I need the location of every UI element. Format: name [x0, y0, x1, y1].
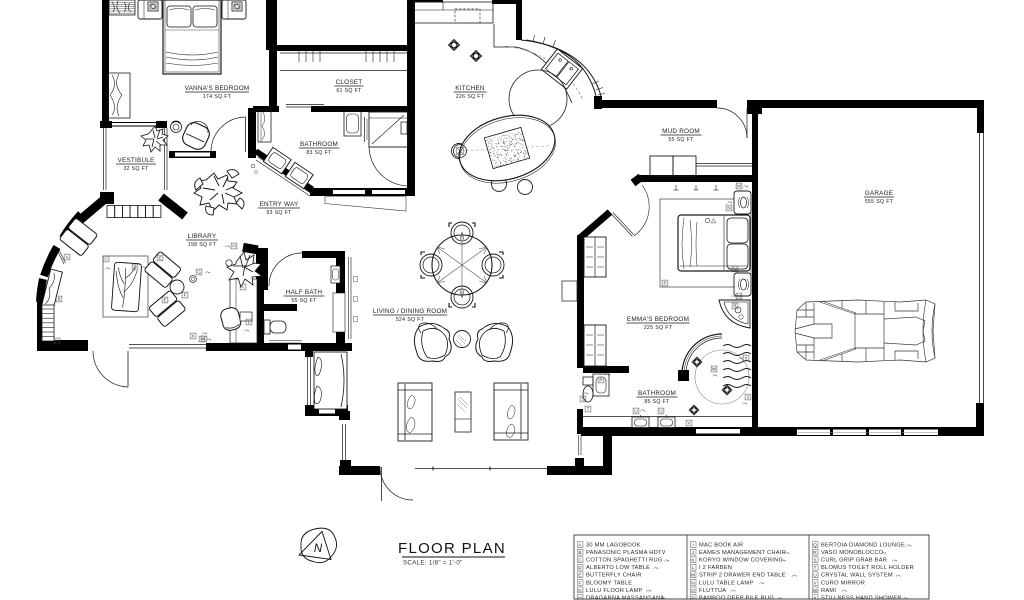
- svg-text:BUTTERFLY CHAIR: BUTTERFLY CHAIR: [586, 573, 642, 579]
- svg-text:W: W: [712, 367, 717, 372]
- svg-text:D: D: [578, 565, 582, 571]
- svg-text:STRIP 2 DRAWER END TABLE: STRIP 2 DRAWER END TABLE: [699, 573, 786, 579]
- svg-text:ALBERTO LOW TABLE: ALBERTO LOW TABLE: [586, 565, 650, 571]
- svg-text:G: G: [197, 270, 201, 275]
- svg-text:R: R: [813, 550, 817, 556]
- svg-text:KORYO WINDOW COVERING: KORYO WINDOW COVERING: [699, 558, 783, 564]
- svg-text:N: N: [733, 267, 736, 272]
- svg-text:LIVING / DINING ROOM: LIVING / DINING ROOM: [373, 308, 447, 315]
- svg-text:85 SQ FT: 85 SQ FT: [644, 399, 670, 405]
- svg-text:30 MM LAGOBOOK: 30 MM LAGOBOOK: [586, 543, 641, 549]
- svg-text:DRAGARNA MASSANGANA: DRAGARNA MASSANGANA: [586, 595, 664, 600]
- svg-text:N: N: [314, 543, 323, 555]
- svg-text:BLOOMY TABLE: BLOOMY TABLE: [586, 580, 632, 586]
- svg-text:H: H: [578, 595, 582, 600]
- svg-text:HALF BATH: HALF BATH: [286, 289, 323, 296]
- svg-text:GARAGE: GARAGE: [865, 190, 894, 197]
- svg-text:524 SQ FT: 524 SQ FT: [396, 317, 425, 323]
- svg-text:198 SQ FT: 198 SQ FT: [188, 242, 217, 248]
- svg-text:FLOOR PLAN: FLOOR PLAN: [398, 540, 506, 557]
- svg-text:174 SQ FT: 174 SQ FT: [203, 94, 232, 100]
- svg-text:BATHROOM: BATHROOM: [300, 141, 338, 148]
- svg-text:BERTOIA DIAMOND LOUNGE: BERTOIA DIAMOND LOUNGE: [821, 543, 905, 549]
- svg-text:N: N: [691, 580, 695, 586]
- svg-text:EAMES MANAGEMENT CHAIR: EAMES MANAGEMENT CHAIR: [699, 550, 786, 556]
- svg-text:L: L: [692, 565, 695, 571]
- svg-text:U: U: [634, 409, 637, 414]
- svg-text:STILLNESS HAND SHOWER: STILLNESS HAND SHOWER: [821, 595, 902, 600]
- svg-text:ENTRY WAY: ENTRY WAY: [260, 201, 299, 208]
- svg-text:BLOMUS TOILET ROLL HOLDER: BLOMUS TOILET ROLL HOLDER: [821, 565, 914, 571]
- svg-text:T: T: [587, 407, 590, 412]
- svg-text:BAMBOO DEEP PILE RUG: BAMBOO DEEP PILE RUG: [699, 595, 774, 600]
- svg-text:F: F: [579, 580, 582, 586]
- svg-text:C: C: [578, 558, 582, 564]
- svg-text:SCALE: 1/8" = 1'-0": SCALE: 1/8" = 1'-0": [403, 560, 463, 567]
- svg-text:M: M: [737, 184, 741, 189]
- svg-text:83 SQ FT: 83 SQ FT: [306, 150, 332, 156]
- svg-text:I: I: [692, 543, 693, 549]
- svg-text:W: W: [813, 588, 818, 594]
- svg-text:VASO MONOBLOCCO: VASO MONOBLOCCO: [821, 550, 884, 556]
- svg-text:P: P: [691, 595, 694, 600]
- svg-text:93 SQ FT: 93 SQ FT: [266, 210, 292, 216]
- svg-text:Q: Q: [813, 543, 817, 549]
- svg-text:FLUTTUA: FLUTTUA: [699, 588, 726, 594]
- svg-text:KITCHEN: KITCHEN: [455, 85, 485, 92]
- svg-text:225 SQ FT: 225 SQ FT: [644, 325, 673, 331]
- svg-text:COTTON SPAGHETTI RUG: COTTON SPAGHETTI RUG: [586, 558, 663, 564]
- svg-text:55 SQ FT: 55 SQ FT: [291, 298, 317, 304]
- svg-text:E: E: [578, 573, 581, 579]
- svg-text:MUD ROOM: MUD ROOM: [662, 128, 700, 135]
- svg-text:E: E: [163, 298, 166, 303]
- svg-text:VESTIBULE: VESTIBULE: [118, 157, 155, 164]
- svg-text:F: F: [184, 293, 187, 298]
- svg-text:X: X: [744, 356, 747, 361]
- svg-text:55 SQ FT: 55 SQ FT: [668, 137, 694, 143]
- svg-text:RAMI: RAMI: [821, 588, 836, 594]
- svg-text:LIBRARY: LIBRARY: [188, 233, 217, 240]
- svg-text:S: S: [813, 558, 816, 564]
- svg-text:555 SQ FT: 555 SQ FT: [865, 199, 894, 205]
- svg-text:T: T: [814, 565, 817, 571]
- svg-text:E: E: [158, 256, 161, 261]
- svg-text:B: B: [578, 550, 581, 556]
- svg-text:G: G: [578, 588, 582, 594]
- svg-text:VANNA'S BEDROOM: VANNA'S BEDROOM: [185, 85, 250, 92]
- svg-text:S: S: [746, 395, 749, 400]
- svg-text:LULU FLOOR LAMP: LULU FLOOR LAMP: [586, 588, 643, 594]
- svg-text:B: B: [57, 297, 60, 302]
- svg-text:O: O: [691, 588, 695, 594]
- svg-text:P: P: [663, 281, 666, 286]
- svg-text:226 SQ FT: 226 SQ FT: [456, 94, 485, 100]
- svg-text:PANASONIC PLASMA HDTV: PANASONIC PLASMA HDTV: [586, 550, 666, 556]
- svg-text:61 SQ FT: 61 SQ FT: [336, 88, 362, 94]
- svg-text:S: S: [581, 397, 584, 402]
- svg-text:I 2 FARBEN: I 2 FARBEN: [699, 565, 732, 571]
- svg-text:CRYSTAL WALL SYSTEM: CRYSTAL WALL SYSTEM: [821, 573, 893, 579]
- svg-text:CLOSET: CLOSET: [336, 79, 363, 86]
- svg-text:EMMA'S BEDROOM: EMMA'S BEDROOM: [627, 316, 689, 323]
- svg-text:CURL GRIP GRAB BAR: CURL GRIP GRAB BAR: [821, 558, 887, 564]
- svg-text:U: U: [813, 573, 817, 579]
- svg-text:U: U: [659, 409, 662, 414]
- svg-text:N: N: [727, 206, 730, 211]
- svg-text:L: L: [248, 320, 251, 325]
- svg-text:I: I: [242, 285, 243, 290]
- svg-text:CURO MIRROR: CURO MIRROR: [821, 580, 865, 586]
- svg-text:32 SQ FT: 32 SQ FT: [123, 166, 149, 172]
- svg-text:MAC BOOK AIR: MAC BOOK AIR: [699, 543, 743, 549]
- svg-text:LULU TABLE LAMP: LULU TABLE LAMP: [699, 580, 753, 586]
- svg-text:H: H: [232, 244, 235, 249]
- svg-text:BATHROOM: BATHROOM: [638, 390, 676, 397]
- svg-text:M: M: [691, 573, 695, 579]
- svg-text:M: M: [737, 294, 741, 299]
